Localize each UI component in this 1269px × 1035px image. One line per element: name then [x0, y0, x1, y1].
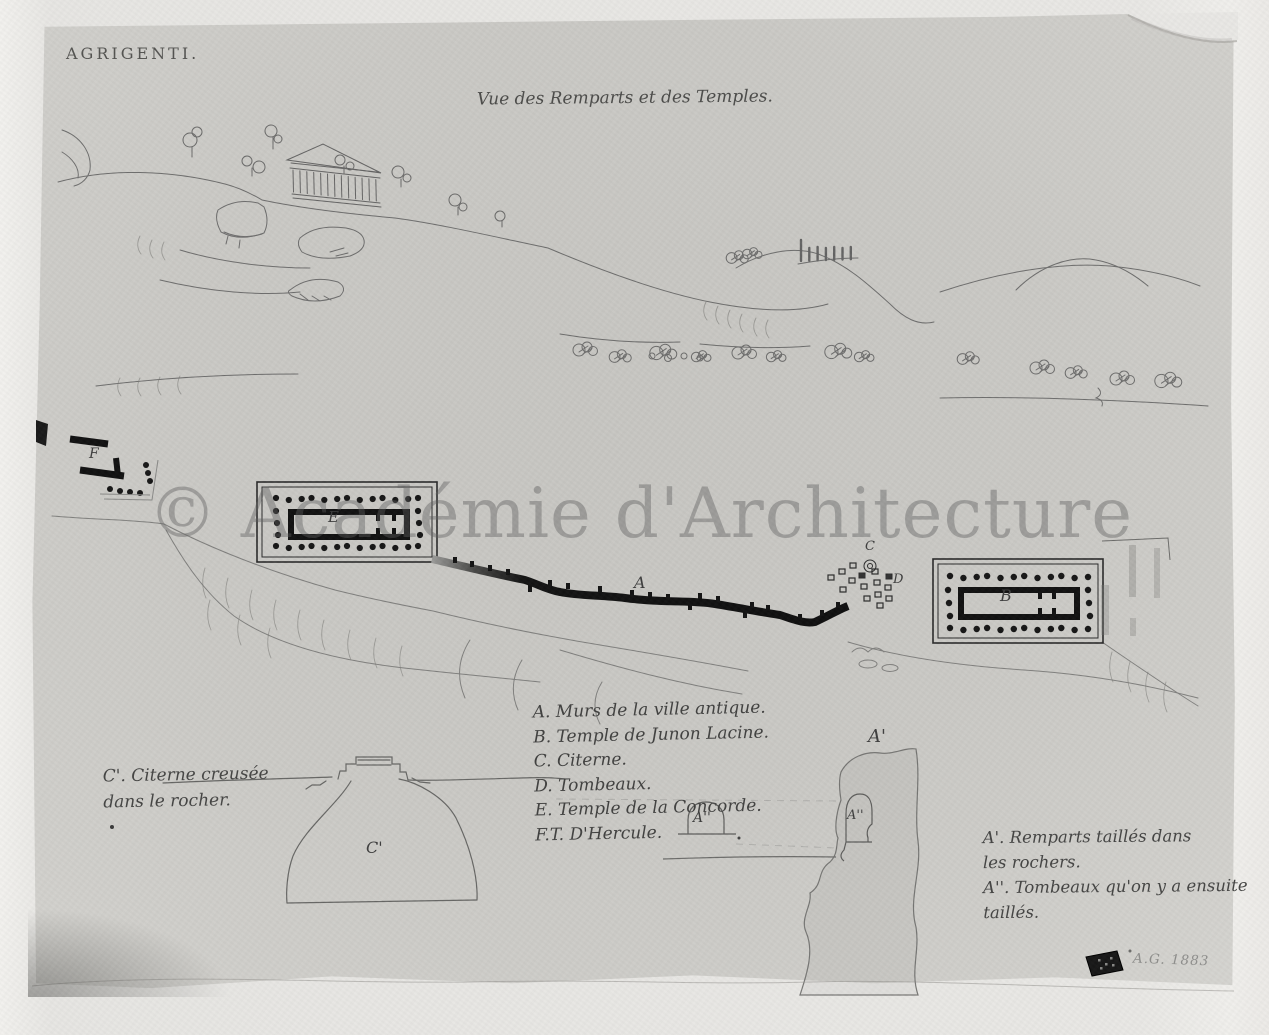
landscape-view-sketch: [58, 125, 1208, 406]
torn-bottom-edge: [32, 979, 1234, 991]
tomb-niche-label: A'': [847, 808, 864, 823]
note-line: A'. Remparts taillés dans: [983, 823, 1248, 850]
tombs-and-cistern-symbols: [828, 560, 892, 608]
temple-elevation: [287, 144, 381, 207]
note-line: C'. Citerne creusée: [103, 761, 269, 790]
legend-item: B. Temple de Junon Lacine.: [533, 720, 769, 750]
rock-structure-right: [1101, 538, 1170, 636]
note-cistern: C'. Citerne creusée dans le rocher.: [103, 761, 270, 816]
city-wall-label: A: [634, 573, 646, 592]
note-line: dans le rocher.: [103, 787, 269, 816]
temple-hercule-label: F: [89, 446, 99, 462]
legend-item: F.T. D'Hercule.: [535, 818, 771, 848]
tombs-label: D: [893, 572, 903, 587]
temple-concorde-label: E: [328, 508, 339, 526]
bushes: [573, 248, 1182, 388]
artist-signature: A.G. 1883: [1133, 951, 1210, 970]
temple-junon-plan: [933, 559, 1103, 643]
rampart-section-label: A': [868, 726, 886, 747]
artwork-title: AGRIGENTI.: [66, 44, 199, 63]
note-line: A''. Tombeaux qu'on y a ensuite: [983, 873, 1248, 900]
legend-item: E. Temple de la Concorde.: [535, 794, 771, 824]
photograph-of-drawing: { "artwork": { "title": "AGRIGENTI.", "c…: [0, 0, 1269, 1035]
ruined-colonnade: [801, 240, 851, 261]
tomb-arch-label: A'': [693, 810, 711, 826]
tree-icons: [183, 125, 505, 227]
view-caption: Vue des Remparts et des Temples.: [477, 86, 773, 109]
collection-stamp: [1086, 950, 1132, 977]
cistern-section-label: C': [366, 838, 383, 857]
paper-corner-curl: [1128, 12, 1238, 42]
note-ramparts: A'. Remparts taillés dans les rochers. A…: [983, 823, 1248, 925]
note-line: taillés.: [983, 898, 1248, 925]
note-line: les rochers.: [983, 848, 1248, 875]
plan-legend: A. Murs de la ville antique. B. Temple d…: [532, 696, 771, 848]
boulders: [160, 202, 364, 301]
temple-concorde-plan: [257, 482, 437, 562]
cistern-symbol-label: C: [865, 539, 875, 554]
temple-junon-label: B: [1000, 586, 1012, 605]
